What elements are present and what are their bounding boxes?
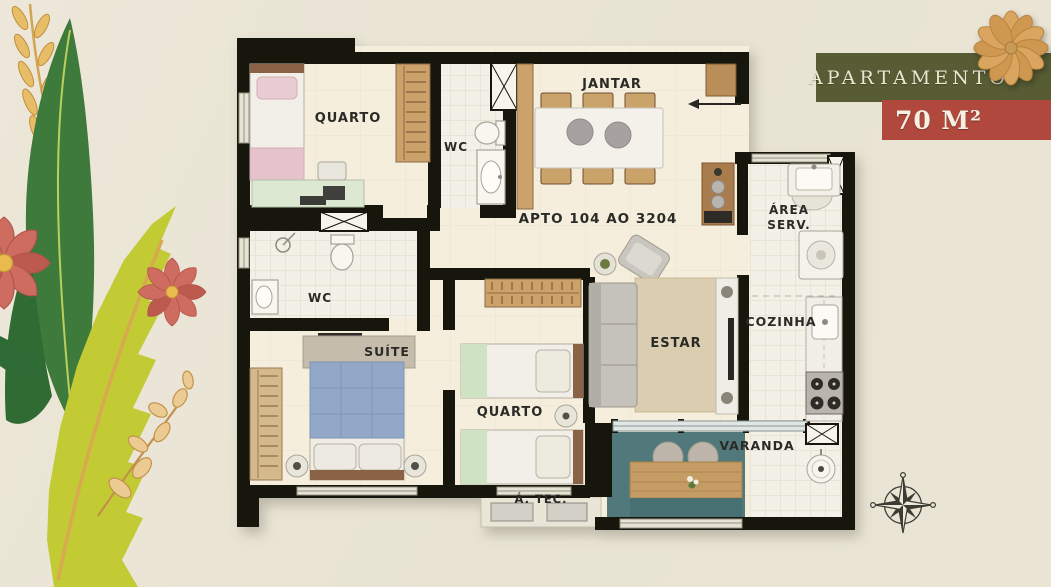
washing-machine [799, 231, 843, 279]
deck-table [630, 462, 742, 517]
shaft-x-icon [806, 424, 838, 444]
label-area-serv-2: SERV. [767, 218, 810, 232]
label-jantar: JANTAR [581, 77, 642, 92]
shaft-x-icon [491, 63, 517, 110]
sideboard [517, 64, 533, 209]
plant-side-table [594, 253, 616, 275]
apartment-floorplan-page: QUARTO WC JANTAR APTO 104 AO 3204 ÁREA S… [0, 0, 1051, 587]
label-area-serv-1: ÁREA [769, 202, 809, 217]
label-estar: ESTAR [650, 336, 701, 351]
label-wc-suite: WC [308, 291, 332, 305]
single-bed [250, 64, 304, 180]
toilet-icon [475, 121, 505, 145]
double-bed [310, 362, 404, 480]
single-bed [461, 344, 583, 398]
floor-plan: QUARTO WC JANTAR APTO 104 AO 3204 ÁREA S… [237, 38, 855, 530]
label-quarto-bottom: QUARTO [477, 405, 544, 420]
entry-cabinet [706, 64, 736, 96]
compass-rose-icon [871, 473, 936, 533]
sofa [589, 283, 637, 407]
sink-icon [477, 150, 505, 204]
coral-flower-small-icon [138, 258, 206, 326]
label-varanda: VARANDA [719, 438, 794, 453]
bathroom-top-fixtures [475, 121, 505, 204]
wardrobe [485, 279, 581, 307]
label-suite: SUÍTE [364, 344, 410, 359]
paper-flower-icon [951, 0, 1051, 108]
shaft-x-icon [320, 212, 368, 231]
label-quarto-top: QUARTO [315, 111, 382, 126]
cooktop-icon [806, 372, 843, 414]
sink-icon [252, 280, 278, 314]
tv-panel [716, 278, 738, 414]
label-wc-top: WC [444, 140, 468, 154]
single-bed [461, 430, 583, 484]
dining-table [535, 108, 663, 168]
toilet-icon [331, 235, 354, 270]
kitchen-island-cooktop [702, 163, 734, 225]
left-decor-plants [0, 4, 206, 587]
wardrobe [250, 368, 282, 480]
wardrobe [396, 64, 430, 162]
label-cozinha: COZINHA [745, 314, 816, 329]
banner-area-value: 70 M² [895, 106, 982, 135]
label-area-tec: Á. TEC. [515, 491, 568, 506]
label-unit-range: APTO 104 AO 3204 [519, 211, 678, 227]
